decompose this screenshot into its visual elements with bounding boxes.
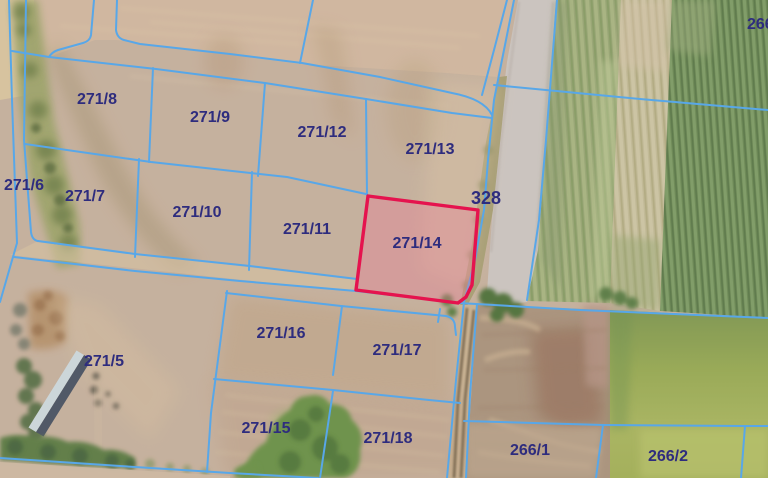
svg-text:271/10: 271/10 xyxy=(173,204,222,221)
svg-text:266/1: 266/1 xyxy=(510,442,550,459)
svg-text:271/6: 271/6 xyxy=(4,177,44,194)
svg-text:271/17: 271/17 xyxy=(373,342,422,359)
svg-text:271/16: 271/16 xyxy=(257,325,306,342)
svg-text:271/9: 271/9 xyxy=(190,109,230,126)
svg-text:271/12: 271/12 xyxy=(298,124,347,141)
svg-text:271/13: 271/13 xyxy=(406,141,455,158)
svg-text:271/11: 271/11 xyxy=(283,221,331,238)
svg-text:271/8: 271/8 xyxy=(77,91,117,108)
svg-text:271/5: 271/5 xyxy=(84,353,124,370)
svg-text:271/14: 271/14 xyxy=(393,235,442,252)
svg-text:328: 328 xyxy=(471,188,501,208)
svg-text:271/18: 271/18 xyxy=(364,430,413,447)
svg-text:271/15: 271/15 xyxy=(242,420,291,437)
svg-text:266/2: 266/2 xyxy=(648,448,688,465)
svg-text:266: 266 xyxy=(747,16,768,33)
svg-text:271/7: 271/7 xyxy=(65,188,105,205)
